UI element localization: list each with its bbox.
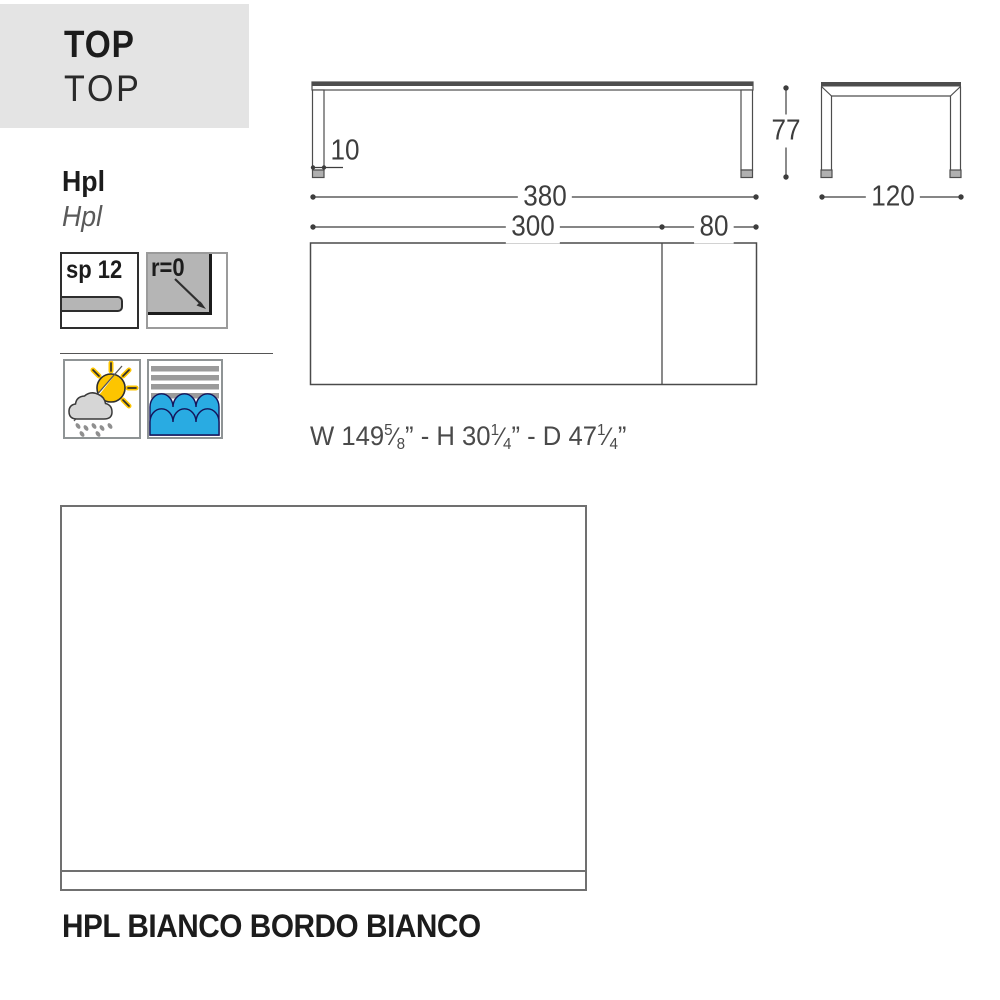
- imperial-w: W 149: [310, 421, 384, 451]
- dim-extension: 80: [694, 211, 734, 244]
- imperial-dimensions: W 1495⁄8” - H 301⁄4” - D 471⁄4”: [310, 421, 626, 454]
- edge-band: [62, 870, 585, 889]
- imperial-d: ” - D 47: [511, 421, 597, 451]
- dim-main-width: 300: [506, 211, 560, 244]
- front-view: [312, 82, 753, 178]
- finish-name: HPL BIANCO BORDO BIANCO: [62, 908, 481, 945]
- imperial-h: ” - H 30: [405, 421, 491, 451]
- product-spec-sheet: TOP TOP Hpl Hpl sp 12 r=0: [0, 0, 1000, 1000]
- side-view: [821, 82, 961, 178]
- dim-depth: 120: [866, 181, 920, 214]
- dim-height: 77: [766, 115, 806, 148]
- plan-view: [311, 243, 757, 385]
- dim-total-width: 380: [518, 181, 572, 214]
- dim-leg-thickness: 10: [330, 135, 359, 168]
- finish-swatch: [60, 505, 587, 891]
